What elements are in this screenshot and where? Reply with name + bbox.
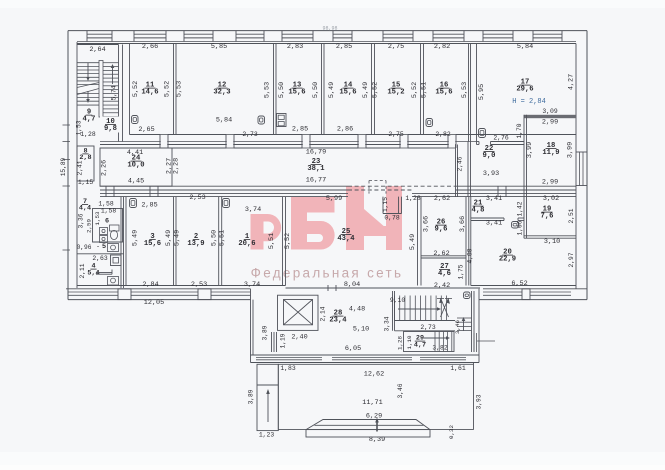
svg-text:20,6: 20,6 bbox=[238, 240, 255, 248]
svg-text:1,75: 1,75 bbox=[458, 264, 465, 279]
svg-text:3,89: 3,89 bbox=[248, 389, 255, 404]
svg-text:1,53: 1,53 bbox=[94, 211, 101, 225]
svg-text:15,2: 15,2 bbox=[387, 89, 404, 97]
svg-text:3,89: 3,89 bbox=[262, 325, 269, 340]
svg-text:1,83: 1,83 bbox=[280, 365, 296, 372]
svg-text:12,05: 12,05 bbox=[144, 299, 164, 307]
svg-text:9,6: 9,6 bbox=[435, 226, 448, 234]
svg-text:5,50: 5,50 bbox=[312, 82, 320, 98]
svg-text:3,99: 3,99 bbox=[526, 142, 534, 158]
svg-text:1,61: 1,61 bbox=[450, 365, 466, 372]
svg-text:3,46: 3,46 bbox=[454, 320, 461, 334]
svg-text:12,62: 12,62 bbox=[364, 371, 384, 379]
svg-text:3,46: 3,46 bbox=[397, 383, 404, 398]
svg-text:22,9: 22,9 bbox=[499, 256, 516, 264]
svg-text:4,48: 4,48 bbox=[349, 306, 365, 314]
svg-text:3,36: 3,36 bbox=[78, 213, 85, 228]
svg-text:2,64: 2,64 bbox=[89, 46, 105, 54]
svg-text:32,3: 32,3 bbox=[213, 89, 230, 97]
svg-text:0,78: 0,78 bbox=[384, 215, 400, 222]
svg-text:1,58: 1,58 bbox=[101, 208, 117, 215]
svg-text:3,93: 3,93 bbox=[476, 394, 483, 409]
svg-text:5,50: 5,50 bbox=[211, 230, 219, 246]
svg-text:29,6: 29,6 bbox=[516, 86, 533, 94]
svg-text:2,28: 2,28 bbox=[173, 158, 181, 174]
svg-text:5,85: 5,85 bbox=[211, 43, 227, 51]
svg-text:1,15: 1,15 bbox=[78, 179, 94, 186]
svg-text:5,49: 5,49 bbox=[328, 82, 336, 98]
svg-text:14,6: 14,6 bbox=[141, 89, 158, 97]
svg-text:5,74: 5,74 bbox=[111, 85, 118, 100]
svg-text:1,23: 1,23 bbox=[259, 432, 275, 439]
svg-text:2,76: 2,76 bbox=[493, 135, 509, 142]
svg-text:3,66: 3,66 bbox=[423, 216, 431, 232]
svg-text:2,59: 2,59 bbox=[86, 219, 93, 233]
svg-text:5,49: 5,49 bbox=[132, 230, 140, 246]
svg-text:98,98: 98,98 bbox=[322, 25, 337, 31]
svg-text:15,6: 15,6 bbox=[288, 89, 305, 97]
svg-text:Н = 2,84: Н = 2,84 bbox=[512, 98, 546, 106]
svg-text:8,04: 8,04 bbox=[344, 281, 360, 289]
svg-text:0,96: 0,96 bbox=[77, 244, 92, 251]
svg-text:11,71: 11,71 bbox=[362, 399, 382, 407]
svg-text:6,52: 6,52 bbox=[511, 280, 527, 288]
svg-text:15,6: 15,6 bbox=[339, 89, 356, 97]
svg-text:7,6: 7,6 bbox=[541, 213, 554, 221]
svg-text:5,52: 5,52 bbox=[132, 81, 140, 97]
svg-text:-: - bbox=[96, 243, 100, 251]
svg-text:2,53: 2,53 bbox=[189, 194, 205, 202]
svg-text:5,49: 5,49 bbox=[362, 82, 370, 98]
svg-text:5,84: 5,84 bbox=[517, 43, 533, 51]
svg-text:23,4: 23,4 bbox=[329, 317, 347, 325]
svg-text:1,70: 1,70 bbox=[516, 123, 523, 138]
svg-text:5: 5 bbox=[102, 243, 106, 251]
svg-text:5,53: 5,53 bbox=[264, 82, 272, 98]
svg-text:2,63: 2,63 bbox=[92, 255, 108, 262]
svg-text:0,32: 0,32 bbox=[448, 425, 455, 439]
svg-text:3,74: 3,74 bbox=[245, 206, 261, 214]
svg-text:5,49: 5,49 bbox=[165, 230, 173, 246]
svg-text:2,62: 2,62 bbox=[434, 195, 450, 203]
svg-text:16,77: 16,77 bbox=[306, 176, 326, 184]
svg-text:2,42: 2,42 bbox=[434, 282, 450, 290]
svg-text:38,1: 38,1 bbox=[307, 165, 325, 173]
svg-text:2,46: 2,46 bbox=[457, 156, 464, 171]
svg-text:5,4: 5,4 bbox=[87, 270, 99, 278]
svg-text:2,40: 2,40 bbox=[291, 334, 307, 342]
svg-text:2,65: 2,65 bbox=[138, 126, 154, 134]
svg-text:5,10: 5,10 bbox=[353, 326, 369, 334]
svg-text:2,82: 2,82 bbox=[435, 131, 451, 138]
svg-text:15,6: 15,6 bbox=[435, 89, 452, 97]
svg-text:3,09: 3,09 bbox=[542, 108, 558, 115]
svg-text:5,53: 5,53 bbox=[461, 82, 469, 98]
svg-text:10,0: 10,0 bbox=[127, 162, 144, 170]
svg-text:2,14: 2,14 bbox=[320, 306, 327, 321]
svg-text:4,4: 4,4 bbox=[79, 205, 91, 213]
svg-text:2,99: 2,99 bbox=[542, 179, 558, 187]
svg-text:16,79: 16,79 bbox=[306, 149, 326, 157]
svg-text:2,85: 2,85 bbox=[336, 43, 352, 51]
svg-text:2,41: 2,41 bbox=[77, 160, 84, 175]
svg-text:2,51: 2,51 bbox=[568, 208, 575, 223]
svg-text:2,62: 2,62 bbox=[433, 250, 449, 258]
svg-text:5,84: 5,84 bbox=[216, 117, 232, 125]
svg-text:5,49: 5,49 bbox=[174, 230, 182, 246]
svg-text:11,9: 11,9 bbox=[542, 149, 559, 157]
svg-text:6: 6 bbox=[105, 218, 109, 226]
svg-text:4,6: 4,6 bbox=[438, 270, 451, 278]
svg-text:2,26: 2,26 bbox=[101, 160, 109, 176]
svg-text:4,45: 4,45 bbox=[128, 178, 144, 186]
svg-text:1,28: 1,28 bbox=[405, 195, 421, 202]
svg-text:5,52: 5,52 bbox=[164, 81, 172, 97]
svg-text:2,99: 2,99 bbox=[542, 119, 558, 127]
svg-text:3,74: 3,74 bbox=[244, 281, 260, 289]
svg-text:5,49: 5,49 bbox=[409, 234, 417, 250]
svg-text:3,02: 3,02 bbox=[543, 195, 559, 203]
svg-text:2,75: 2,75 bbox=[388, 131, 404, 138]
svg-text:4,8: 4,8 bbox=[472, 207, 485, 215]
svg-text:15,6: 15,6 bbox=[144, 240, 161, 248]
svg-text:5,99: 5,99 bbox=[326, 195, 342, 203]
svg-text:5,53: 5,53 bbox=[176, 81, 184, 97]
svg-text:5,52: 5,52 bbox=[411, 82, 419, 98]
svg-text:3,99: 3,99 bbox=[567, 142, 575, 158]
svg-text:2,82: 2,82 bbox=[434, 43, 450, 51]
svg-text:Федеральная сеть: Федеральная сеть bbox=[251, 266, 404, 281]
svg-text:1,58: 1,58 bbox=[98, 201, 114, 208]
svg-text:2,11: 2,11 bbox=[79, 263, 86, 278]
svg-text:43,4: 43,4 bbox=[337, 235, 355, 243]
svg-text:2,85: 2,85 bbox=[292, 126, 308, 134]
svg-text:5,52: 5,52 bbox=[372, 82, 380, 98]
svg-text:9,8: 9,8 bbox=[104, 125, 117, 133]
svg-text:2,53: 2,53 bbox=[191, 281, 207, 289]
svg-text:9,10: 9,10 bbox=[390, 297, 406, 304]
svg-text:2,75: 2,75 bbox=[388, 43, 404, 51]
svg-text:9,0: 9,0 bbox=[483, 152, 496, 160]
svg-text:4,00: 4,00 bbox=[467, 248, 474, 263]
svg-text:2,66: 2,66 bbox=[142, 43, 158, 51]
svg-text:2,86: 2,86 bbox=[337, 126, 353, 134]
svg-text:1,19: 1,19 bbox=[280, 333, 287, 348]
svg-text:5,51: 5,51 bbox=[219, 230, 227, 246]
svg-text:1,28: 1,28 bbox=[397, 336, 404, 350]
svg-text:1,42: 1,42 bbox=[517, 201, 524, 216]
svg-text:2,73: 2,73 bbox=[420, 324, 436, 331]
svg-text:5,51: 5,51 bbox=[421, 82, 429, 98]
svg-text:15,89: 15,89 bbox=[60, 157, 67, 176]
svg-text:3,10: 3,10 bbox=[544, 238, 560, 246]
svg-text:1,15: 1,15 bbox=[382, 197, 389, 212]
svg-text:6,05: 6,05 bbox=[345, 345, 361, 353]
svg-text:2,83: 2,83 bbox=[287, 43, 303, 51]
svg-text:5,50: 5,50 bbox=[278, 82, 286, 98]
svg-text:2,97: 2,97 bbox=[568, 252, 575, 267]
svg-text:5,51: 5,51 bbox=[268, 233, 276, 249]
svg-text:2,73: 2,73 bbox=[242, 131, 258, 138]
svg-text:4,7: 4,7 bbox=[414, 342, 426, 350]
svg-text:3,41: 3,41 bbox=[486, 195, 502, 203]
svg-text:5,95: 5,95 bbox=[478, 84, 486, 100]
svg-text:5,52: 5,52 bbox=[284, 233, 292, 249]
svg-text:13,9: 13,9 bbox=[187, 240, 204, 248]
svg-text:3,93: 3,93 bbox=[483, 170, 499, 178]
svg-text:4,7: 4,7 bbox=[83, 116, 96, 124]
svg-text:1,06: 1,06 bbox=[517, 220, 524, 235]
svg-text:3,41: 3,41 bbox=[486, 219, 502, 227]
svg-text:3,34: 3,34 bbox=[384, 316, 391, 331]
svg-text:1,10: 1,10 bbox=[406, 335, 413, 349]
svg-text:2,84: 2,84 bbox=[142, 281, 158, 289]
svg-text:4,27: 4,27 bbox=[568, 74, 576, 90]
svg-text:1,28: 1,28 bbox=[80, 131, 96, 138]
svg-text:2,85: 2,85 bbox=[141, 202, 157, 210]
